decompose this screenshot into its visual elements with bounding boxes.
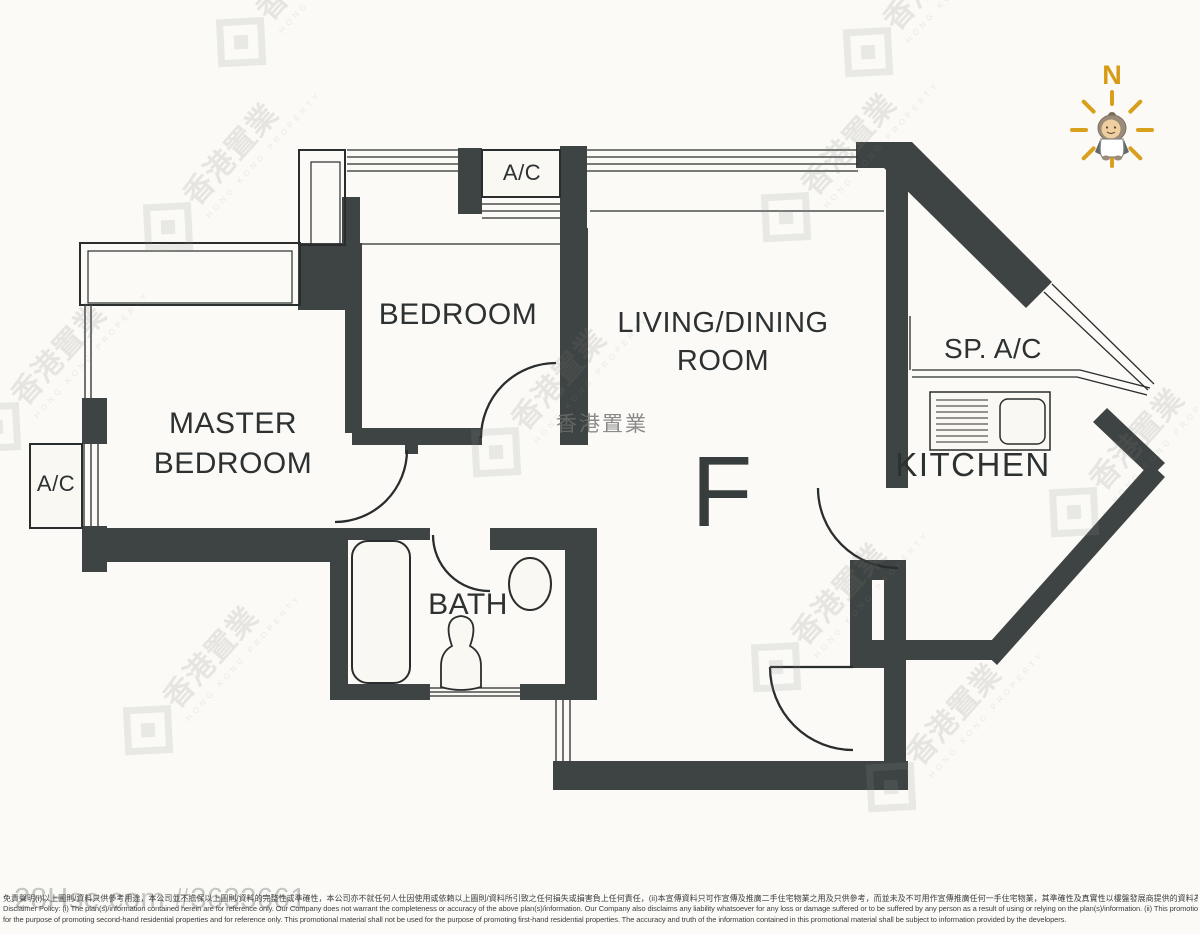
- mascot-icon: [1095, 112, 1129, 161]
- label-unit-letter: F: [672, 440, 772, 545]
- label-master-bedroom-line2: BEDROOM: [130, 448, 336, 480]
- label-ac-platform-top: A/C: [486, 161, 558, 184]
- disclaimer-chinese: 免責聲明(i)以上圖則/資料只供參考用途，本公司並不擔保以上圖則/資料的完整性或…: [3, 893, 1198, 904]
- bedroom-door: [481, 363, 556, 438]
- label-living-dining-line1: LIVING/DINING: [598, 308, 848, 338]
- main-entrance-door: [770, 667, 853, 750]
- label-ac-platform-left: A/C: [30, 472, 82, 495]
- master-bedroom-door: [335, 450, 407, 522]
- label-master-bedroom-line1: MASTER: [130, 408, 336, 440]
- disclaimer-english-line1: Disclaimer Policy: (i) The plan(s)/infor…: [3, 904, 1198, 915]
- toilet: [441, 616, 481, 690]
- north-label-glyph: N: [1102, 60, 1122, 90]
- floorplan-page: 香港置業HONG KONG PROPERTY 香港置業HONG KONG PRO…: [0, 0, 1200, 934]
- north-compass: N: [1066, 56, 1160, 168]
- label-bath: BATH: [418, 589, 518, 621]
- bathtub: [352, 541, 410, 683]
- watermark-center-brand: 香港置業: [556, 408, 648, 438]
- disclaimer-english-line2: for the purpose of promoting second-hand…: [3, 915, 1198, 926]
- kitchen-counter-and-sink: [930, 392, 1050, 450]
- label-sp-ac-platform: SP. A/C: [908, 334, 1078, 363]
- disclaimer-block: 免責聲明(i)以上圖則/資料只供參考用途，本公司並不擔保以上圖則/資料的完整性或…: [3, 893, 1198, 925]
- label-bedroom: BEDROOM: [355, 299, 561, 331]
- label-kitchen: KITCHEN: [868, 448, 1078, 483]
- bath-door: [433, 535, 490, 591]
- label-living-dining-line2: ROOM: [598, 346, 848, 376]
- kitchen-door: [818, 488, 898, 568]
